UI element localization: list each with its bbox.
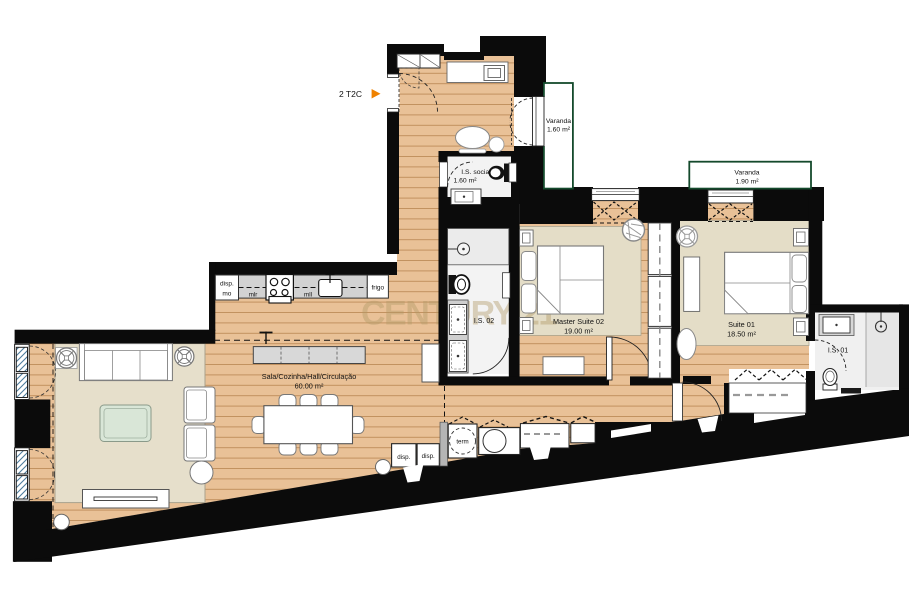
- svg-text:1.90 m²: 1.90 m²: [735, 179, 759, 186]
- svg-text:60.00 m²: 60.00 m²: [295, 382, 324, 391]
- svg-text:frigo: frigo: [371, 285, 384, 292]
- svg-text:I.S. social: I.S. social: [461, 169, 491, 176]
- svg-text:mo: mo: [222, 291, 231, 298]
- svg-text:1.60 m²: 1.60 m²: [547, 127, 571, 134]
- svg-text:2 T2C: 2 T2C: [339, 89, 362, 99]
- svg-text:Master Suite 02: Master Suite 02: [553, 317, 604, 326]
- svg-text:disp.: disp.: [397, 454, 410, 461]
- svg-text:Varanda: Varanda: [546, 118, 571, 125]
- svg-text:19.00 m²: 19.00 m²: [564, 327, 593, 336]
- svg-text:I.S. 01: I.S. 01: [828, 348, 848, 355]
- svg-text:Sala/Cozinha/Hall/Circulação: Sala/Cozinha/Hall/Circulação: [262, 372, 357, 381]
- svg-text:I.S. 02: I.S. 02: [474, 318, 494, 325]
- svg-text:1.60 m²: 1.60 m²: [453, 178, 477, 185]
- svg-text:term: term: [456, 439, 468, 446]
- svg-text:Suite 01: Suite 01: [728, 320, 755, 329]
- svg-text:mll: mll: [304, 292, 312, 299]
- svg-text:Varanda: Varanda: [734, 170, 759, 177]
- svg-text:18.50 m²: 18.50 m²: [727, 330, 756, 339]
- svg-text:disp.: disp.: [220, 281, 234, 288]
- svg-text:mlr: mlr: [249, 292, 258, 299]
- svg-text:disp.: disp.: [422, 453, 435, 460]
